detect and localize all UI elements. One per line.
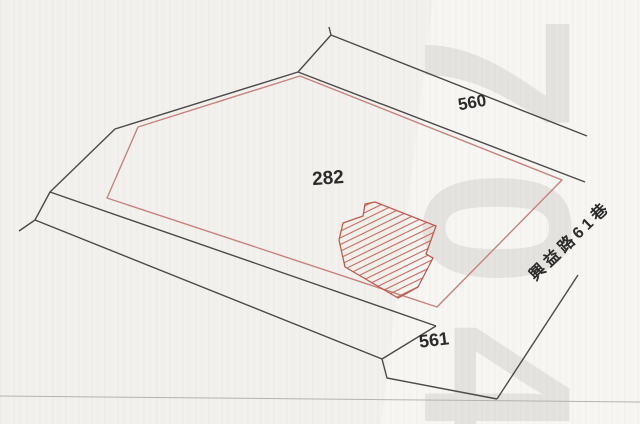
cadastral-map-scan: 704 560 282 561 興益路61 [0,0,640,424]
cadastral-map-canvas: 704 560 282 561 興益路61 [0,0,640,424]
label-parcel-282: 282 [311,167,344,190]
label-road-561: 561 [418,328,450,352]
